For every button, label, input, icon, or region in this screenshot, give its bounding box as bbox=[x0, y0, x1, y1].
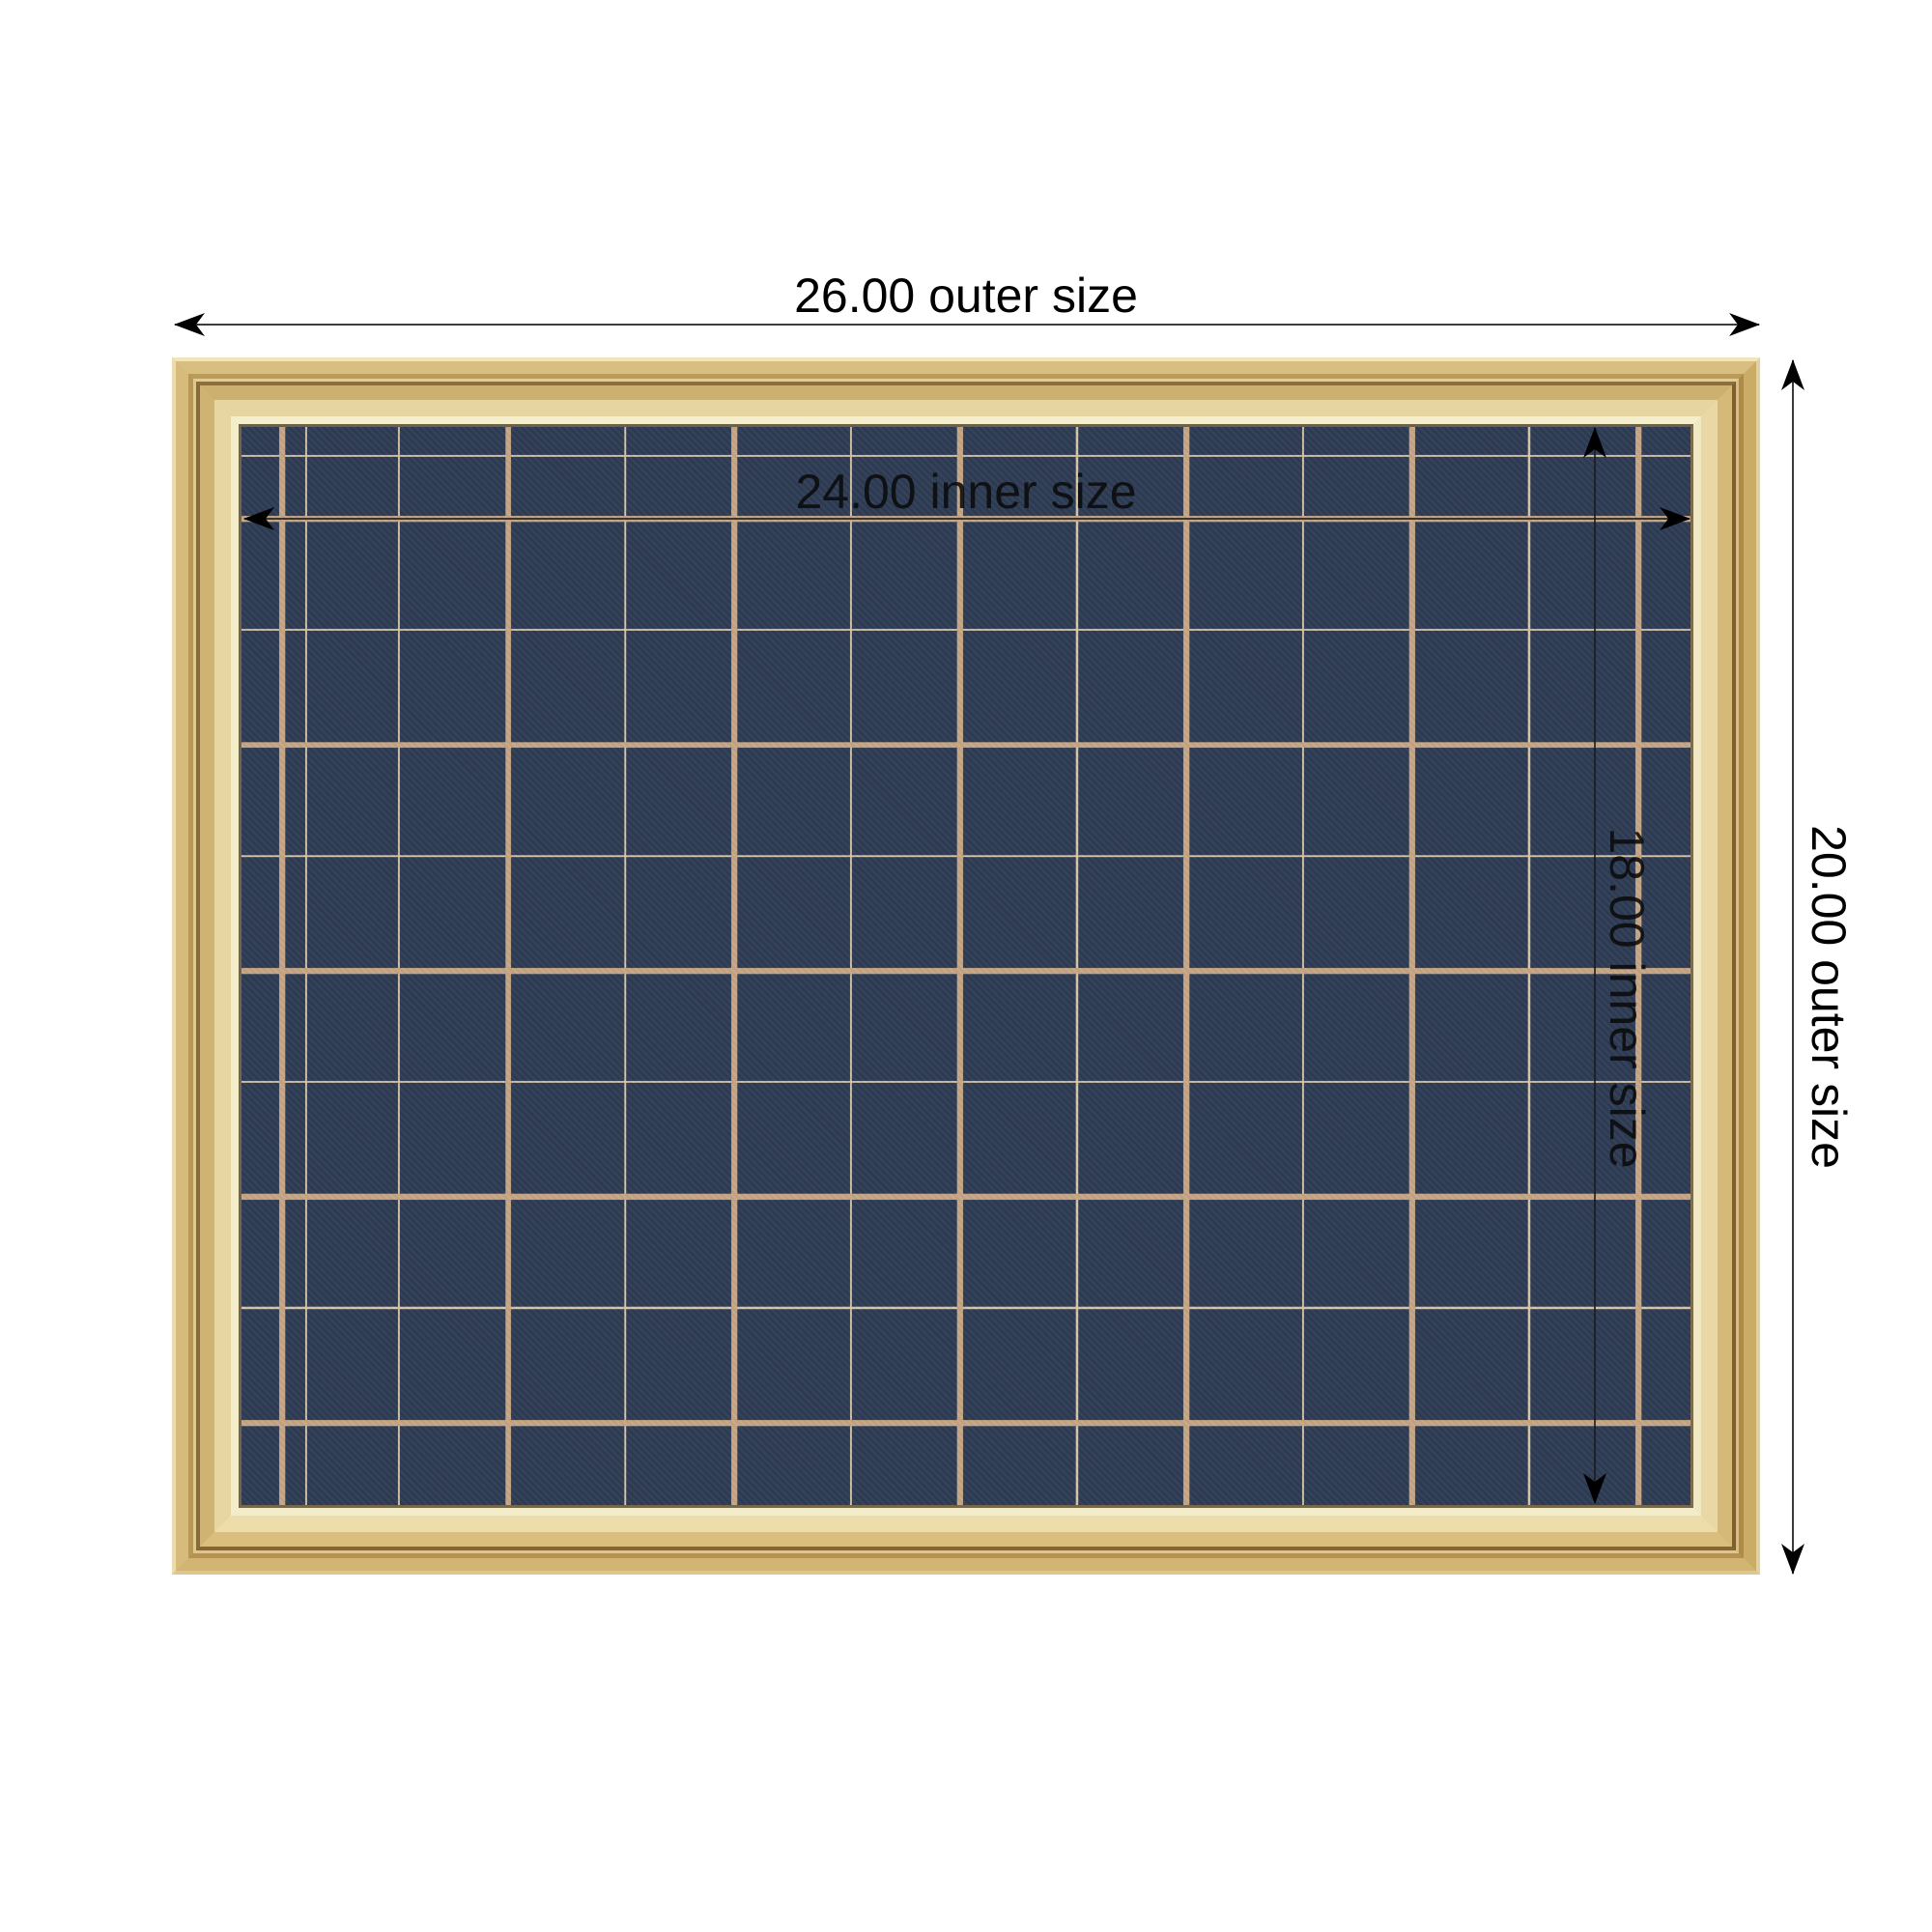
arrow-up-icon bbox=[1583, 427, 1606, 458]
outer-height-dimension-line bbox=[1792, 360, 1794, 1574]
outer-width-dimension-label: 26.00 outer size bbox=[794, 271, 1138, 320]
arrow-right-icon bbox=[1660, 507, 1690, 530]
dimension-annotations: 26.00 outer size 20.00 outer size 24.00 … bbox=[0, 0, 1932, 1932]
inner-height-dimension-label: 18.00 inner size bbox=[1603, 827, 1651, 1168]
arrow-up-icon bbox=[1781, 359, 1804, 390]
arrow-right-icon bbox=[1729, 313, 1760, 336]
arrow-left-icon bbox=[243, 507, 274, 530]
inner-height-dimension-line bbox=[1594, 428, 1596, 1503]
arrow-down-icon bbox=[1583, 1473, 1606, 1504]
outer-height-dimension-label: 20.00 outer size bbox=[1804, 825, 1853, 1169]
arrow-down-icon bbox=[1781, 1544, 1804, 1575]
inner-width-dimension-label: 24.00 inner size bbox=[795, 468, 1136, 516]
arrow-left-icon bbox=[174, 313, 205, 336]
framed-board-dimension-diagram: 26.00 outer size 20.00 outer size 24.00 … bbox=[0, 0, 1932, 1932]
inner-width-dimension-line bbox=[244, 518, 1690, 520]
outer-width-dimension-line bbox=[175, 324, 1759, 326]
